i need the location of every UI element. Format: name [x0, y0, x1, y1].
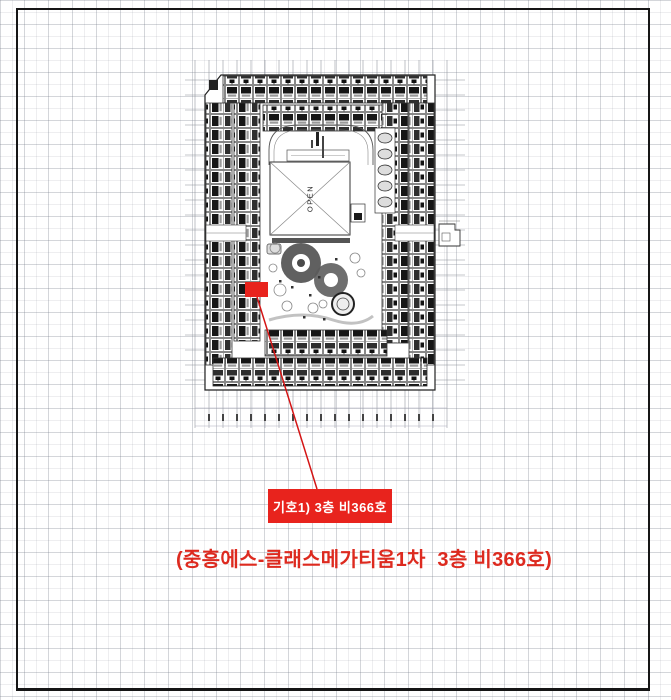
unit-label-callout: 기호1) 3층 비366호 — [268, 489, 392, 523]
annex-building — [439, 221, 460, 246]
document-page: OPEN — [0, 0, 671, 700]
leader-line — [257, 297, 317, 489]
unit-highlight-marker — [245, 282, 268, 297]
stair-core-strip — [375, 128, 395, 213]
annotation-overlay — [240, 276, 410, 496]
caption-text: (중흥에스-클래스메가티움1차 3층 비366호) — [176, 543, 552, 572]
open-area-label: OPEN — [306, 185, 315, 212]
